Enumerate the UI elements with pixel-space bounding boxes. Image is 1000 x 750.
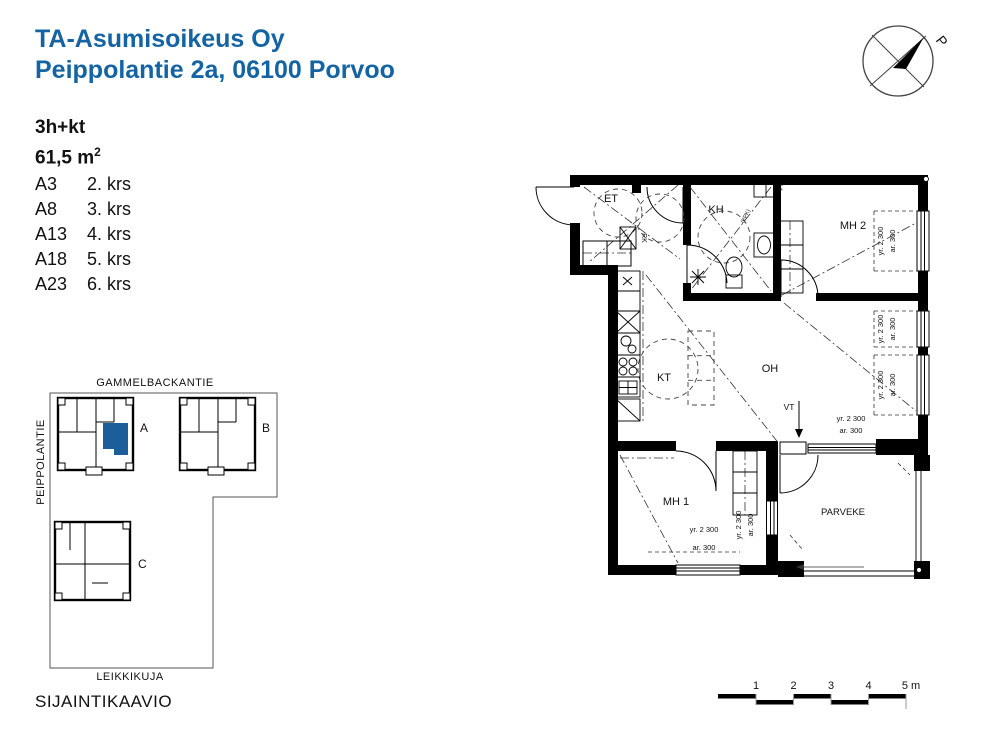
site-plan: GAMMELBACKANTIE PEIPPOLANTIE LEIKKIKUJA … — [30, 372, 320, 690]
scale-tick-3: 3 — [828, 680, 834, 692]
apartment-floor-plan: RK — [528, 163, 948, 615]
et-wardrobe — [583, 241, 631, 266]
scale-tick-1: 1 — [753, 680, 759, 692]
room-label-et: ET — [604, 193, 618, 205]
street-name-top: GAMMELBACKANTIE — [96, 377, 214, 389]
svg-text:ar. 300: ar. 300 — [693, 543, 716, 552]
stove-icon — [616, 355, 640, 377]
scale-tick-4: 4 — [865, 680, 871, 692]
mh2-closets — [778, 221, 803, 293]
unit-row: A83. krs — [35, 197, 131, 222]
electrical-board-rk — [620, 227, 636, 249]
room-label-kh: KH — [708, 204, 723, 216]
building-a-outline — [58, 398, 133, 475]
building-c-outline — [55, 522, 130, 600]
rk-label: RK — [640, 233, 647, 243]
highlighted-apartment — [103, 423, 128, 455]
vt-label: VT — [784, 402, 795, 412]
window-mh2 — [917, 211, 929, 271]
scale-bar: 1 2 3 4 5 m — [713, 678, 973, 728]
svg-text:yr. 2 300: yr. 2 300 — [690, 525, 719, 534]
window-oh-1 — [917, 311, 929, 347]
room-label-oh: OH — [762, 363, 779, 375]
svg-text:ar. 300: ar. 300 — [746, 514, 755, 537]
building-b-label: B — [262, 421, 270, 435]
street-name-bottom: LEIKKIKUJA — [96, 671, 164, 683]
room-label-kt: KT — [657, 372, 671, 384]
unit-row: A236. krs — [35, 272, 131, 297]
ppk-label: (PPK) — [740, 209, 752, 225]
sheet-title: TA-Asumisoikeus Oy Peippolantie 2a, 0610… — [35, 24, 395, 86]
compass-rose: P — [858, 16, 968, 111]
balcony-door-swing — [780, 455, 818, 493]
py-label: PY — [779, 183, 785, 191]
svg-text:yr. 2 300: yr. 2 300 — [876, 315, 885, 344]
apartment-info: 3h+kt 61,5 m2 — [35, 115, 101, 170]
svg-text:ar. 300: ar. 300 — [840, 426, 863, 435]
sink-icon — [616, 333, 640, 355]
north-needle-icon — [893, 37, 924, 69]
furniture-outline — [688, 331, 714, 405]
svg-text:yr. 2 300: yr. 2 300 — [876, 371, 885, 400]
building-a-label: A — [140, 421, 148, 435]
unit-row: A32. krs — [35, 172, 131, 197]
street-name-left: PEIPPOLANTIE — [35, 419, 47, 504]
unit-row: A134. krs — [35, 222, 131, 247]
window-oh-2 — [917, 355, 929, 415]
apartment-unit-list: A32. krs A83. krs A134. krs A185. krs A2… — [35, 172, 131, 297]
svg-text:ar. 300: ar. 300 — [888, 374, 897, 397]
building-b-outline — [180, 398, 255, 475]
balcony-door-and-window — [780, 442, 876, 454]
unit-row: A185. krs — [35, 247, 131, 272]
company-name: TA-Asumisoikeus Oy — [35, 24, 395, 55]
building-c-label: C — [138, 557, 147, 571]
bathroom-fixtures — [690, 177, 778, 288]
et-hall-door — [647, 187, 683, 223]
street-address: Peippolantie 2a, 06100 Porvoo — [35, 55, 395, 86]
balcony-railings — [786, 463, 921, 576]
room-label-parveke: PARVEKE — [821, 507, 865, 518]
apartment-type: 3h+kt — [35, 115, 101, 140]
kitchen-counter — [616, 271, 640, 421]
svg-text:ar. 300: ar. 300 — [888, 230, 897, 253]
entrance-door — [536, 187, 574, 225]
window-dimensions: yr. 2 300 ar. 300 yr. 2 300 ar. 300 yr. … — [690, 227, 897, 552]
svg-text:yr. 2 300: yr. 2 300 — [837, 414, 866, 423]
toilet-icon — [726, 257, 742, 288]
shower-icon — [690, 269, 706, 285]
floorplan-sheet: TA-Asumisoikeus Oy Peippolantie 2a, 0610… — [0, 0, 1000, 750]
room-label-mh2: MH 2 — [840, 220, 866, 232]
svg-text:ar. 300: ar. 300 — [888, 318, 897, 341]
scale-tick-2: 2 — [790, 680, 796, 692]
window-mh1-side — [767, 501, 778, 535]
corner-marker — [917, 568, 922, 573]
basin-icon — [754, 233, 774, 257]
apartment-area: 61,5 m2 — [35, 140, 101, 170]
svg-text:yr. 2 300: yr. 2 300 — [734, 511, 743, 540]
window-mh1 — [676, 565, 740, 575]
corner-marker — [924, 177, 929, 182]
room-label-mh1: MH 1 — [663, 496, 689, 508]
mh1-door — [676, 451, 716, 491]
site-plan-caption: SIJAINTIKAAVIO — [35, 692, 172, 712]
vt-marker — [795, 401, 803, 438]
north-label: P — [933, 32, 951, 49]
svg-text:yr. 2 300: yr. 2 300 — [876, 227, 885, 256]
scale-tick-5m: 5 m — [902, 680, 920, 692]
property-boundary — [50, 393, 277, 668]
